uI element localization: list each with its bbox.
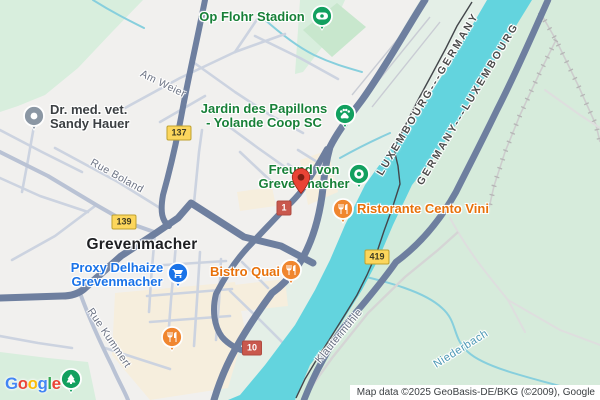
route-badge-419: 419 <box>364 250 389 265</box>
paw-icon[interactable] <box>334 103 356 130</box>
map-canvas[interactable]: LUXEMBOURG---GERMANY GERMANY---LUXEMBOUR… <box>0 0 600 400</box>
route-badge-1: 1 <box>276 201 291 216</box>
shopping-cart-icon[interactable] <box>167 262 189 289</box>
google-logo[interactable]: Google <box>5 374 61 394</box>
place-dot-icon[interactable] <box>348 163 370 190</box>
vet-pin-icon[interactable] <box>23 105 45 132</box>
poi-label-ristorante[interactable]: Ristorante Cento Vini <box>357 202 489 216</box>
poi-label-op-flohr[interactable]: Op Flohr Stadion <box>199 10 304 24</box>
restaurant-icon-bistro[interactable] <box>280 259 302 286</box>
destination-pin-icon[interactable] <box>286 162 316 200</box>
restaurant-icon-unnamed[interactable] <box>161 326 183 353</box>
tree-icon[interactable] <box>60 368 82 395</box>
poi-label-vet[interactable]: Dr. med. vet. Sandy Hauer <box>50 103 129 131</box>
stadium-icon[interactable] <box>311 5 333 32</box>
city-label[interactable]: Grevenmacher <box>87 236 198 254</box>
route-badge-139: 139 <box>111 215 136 230</box>
poi-label-bistro[interactable]: Bistro Quai <box>210 265 280 279</box>
route-badge-10: 10 <box>242 341 262 356</box>
poi-label-jardin[interactable]: Jardin des Papillons - Yolande Coop SC <box>201 102 327 130</box>
route-badge-137: 137 <box>166 126 191 141</box>
poi-label-proxy[interactable]: Proxy Delhaize Grevenmacher <box>71 261 164 289</box>
road-n1-north <box>162 0 205 226</box>
map-attribution: Map data ©2025 GeoBasis-DE/BKG (©2009), … <box>350 385 600 400</box>
restaurant-icon-ristorante[interactable] <box>332 198 354 225</box>
